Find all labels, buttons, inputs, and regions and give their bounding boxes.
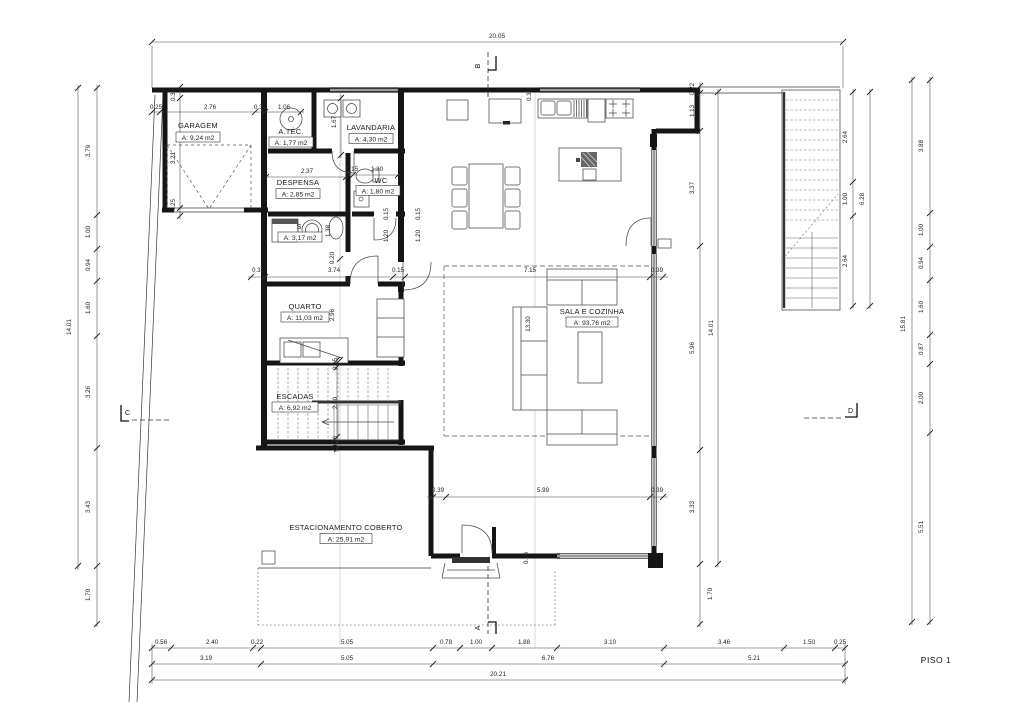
dim: 1.70 [85,588,92,601]
dim: 1.60 [85,301,92,314]
dim: 0.56 [155,639,168,646]
dim: 0.39 [651,267,664,274]
room-name: SALA E COZINHA [560,307,625,316]
dim: 3.10 [604,639,617,646]
dim: 15.81 [900,316,907,332]
tall-cabinet [588,99,605,122]
section-markers: B A C D [121,52,857,634]
room-area: A: 6,92 m2 [279,405,312,412]
dim: 1.38 [325,224,332,237]
dim: 1.20 [415,229,422,242]
room-name: ESTACIONAMENTO COBERTO [289,523,402,532]
covered-parking [258,551,555,625]
exterior-step [658,239,671,248]
dim: 3.43 [85,500,92,513]
dim: 7.15 [524,267,537,274]
dim: 0.33 [170,88,177,101]
chair [505,211,520,229]
living-room [513,269,617,445]
dim: 1.00 [85,225,92,238]
room-area: A: 4,30 m2 [355,136,388,143]
sheet-title: PISO 1 [921,655,951,665]
dim: 1.30 [371,166,384,173]
dim: 20.05 [489,33,505,40]
wardrobe [377,299,404,357]
dim: 5.96 [689,341,696,354]
room-area: A: 9,24 m2 [182,135,215,142]
room-area: A: 1,77 m2 [275,140,308,147]
dim: 1.00 [470,639,483,646]
chair [452,189,467,207]
chair [452,211,467,229]
dim: 1.88 [518,639,531,646]
column [262,551,275,564]
dim: 0.39 [432,487,445,494]
fridge [489,99,521,123]
dim: 0.94 [918,256,925,269]
dim: 3.37 [689,181,696,194]
garage-door-swing [167,145,251,209]
dim: 1.60 [918,300,925,313]
dim: 2.64 [842,130,849,143]
chair [452,167,467,185]
dim: 0.15 [383,207,390,220]
dim: 2.76 [204,104,217,111]
room-name: QUARTO [288,302,321,311]
chair [505,189,520,207]
room-name: DESPENSA [277,178,319,187]
room-area: A: 93,76 m2 [574,320,611,327]
dryer [343,100,360,117]
dining-table [469,164,503,228]
dim: 3.19 [200,655,213,662]
section-label-a: A [475,625,482,630]
dim: 1.13 [689,104,696,117]
room-name: A.TÉC. [278,127,303,136]
dim: 0.78 [440,639,453,646]
dim: 13.30 [525,316,532,332]
room-area: A: 2,85 m2 [282,191,315,198]
section-label-d: D [848,408,853,415]
plot-boundary-lines [129,95,163,702]
dim: 2.37 [301,168,314,175]
washer [324,100,341,117]
dim: 0.94 [85,258,92,271]
room-name: GARAGEM [178,121,218,130]
dim: 0.15 [415,207,422,220]
dining-set [452,164,520,229]
walls [152,88,700,568]
room-name: ESCADAS [276,392,313,401]
dim: 0.15 [346,166,359,173]
stove [606,99,633,118]
dim: 0.39 [651,487,664,494]
dim: 0.22 [251,639,264,646]
section-label-b: B [475,63,482,68]
dim: 1.67 [331,115,338,128]
dim: 2.00 [332,396,339,409]
dim: 2.96 [329,308,336,321]
dim: 1.00 [918,223,925,236]
drawing-sheet: B A C D GARAGEM A: 9,24 m2 A.TÉC. A: 1,7… [0,0,1010,720]
dim: 1.00 [842,192,849,205]
dim: 0.22 [689,82,696,95]
room-name: LAVANDARIA [347,123,395,132]
dim: 5.05 [341,655,354,662]
entry-threshold [452,557,490,563]
room-area: A: 11,03 m2 [287,315,323,322]
room-area: A: 3,17 m2 [284,235,317,242]
dim: 3.21 [170,151,177,164]
dim: 0.36 [523,551,530,564]
coffee-table [578,332,602,383]
dim: 0.33 [526,88,533,101]
dim: 2.00 [918,391,925,404]
dim: 0.36 [332,435,339,448]
dim: 20.21 [490,671,506,678]
section-label-c: C [125,410,130,417]
dim: 1.20 [383,229,390,242]
floor-plan: B A C D GARAGEM A: 9,24 m2 A.TÉC. A: 1,7… [0,0,1010,720]
room-name: S [296,222,301,231]
utility-fixtures [272,100,379,242]
dim: 3.46 [718,639,731,646]
dim: 6.76 [542,655,555,662]
dim: 1.06 [278,104,291,111]
dim: 0.15 [392,267,405,274]
dim: 5.21 [748,655,761,662]
dim: 0.87 [918,342,925,355]
dim: 0.20 [329,251,336,264]
kitchen-cabinet [447,100,468,120]
dim: 14.01 [708,320,715,336]
dim: 0.25 [170,198,177,211]
dim: 3.74 [328,267,341,274]
dim: 0.30 [254,104,267,111]
dim: 6.28 [859,192,866,205]
dim: 2.64 [842,254,849,267]
dim: 3.26 [85,385,92,398]
room-area: A: 25,91 m2 [328,536,365,543]
dim: 1.50 [803,639,816,646]
chair [505,167,520,185]
dim: 5.05 [341,639,354,646]
dim: 0.15 [332,357,339,370]
dim: 1.70 [707,587,714,600]
dim: 3.33 [689,500,696,513]
dim: 0.39 [252,267,265,274]
dim: 2.40 [206,639,219,646]
dim: 3.79 [85,144,92,157]
room-area: A: 1,80 m2 [362,188,395,195]
dim: 14.01 [66,319,73,335]
stairs-exterior [700,87,840,310]
dim: 3.88 [918,139,925,152]
dim: 0.25 [834,639,847,646]
dim: 5.51 [918,520,925,533]
dim: 0.25 [150,104,163,111]
dim: 5.99 [537,487,550,494]
room-name: WC [375,176,388,185]
